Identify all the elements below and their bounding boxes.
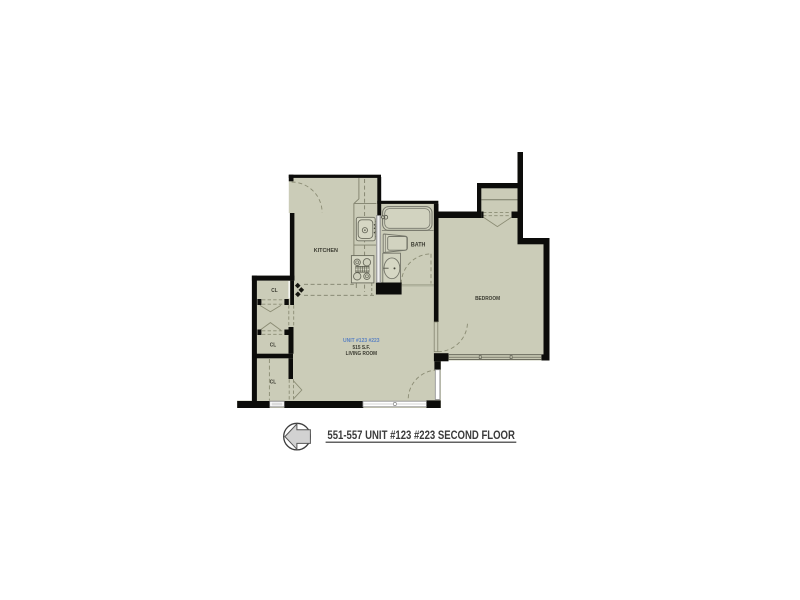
svg-text:BATH: BATH [411,242,426,248]
svg-text:UNIT #123 #223: UNIT #123 #223 [343,338,380,344]
svg-text:551-557 UNIT #123 #223 SECOND: 551-557 UNIT #123 #223 SECOND FLOOR [327,428,515,442]
svg-text:515 S.F.: 515 S.F. [353,345,371,351]
svg-text:CL: CL [271,288,278,294]
svg-text:CL: CL [270,342,277,348]
svg-text:BEDROOM: BEDROOM [475,296,500,302]
svg-text:LIVING ROOM: LIVING ROOM [346,351,378,357]
svg-text:KITCHEN: KITCHEN [314,248,338,254]
svg-text:CL: CL [270,380,277,386]
